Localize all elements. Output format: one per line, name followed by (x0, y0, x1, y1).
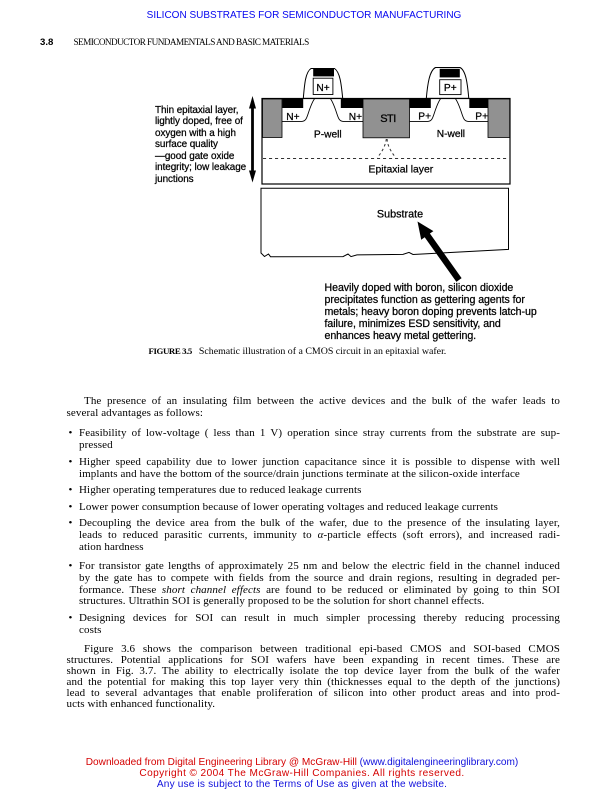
svg-text:P+: P+ (475, 112, 488, 123)
svg-text:Epitaxial layer: Epitaxial layer (369, 165, 434, 176)
svg-text:N+: N+ (349, 112, 362, 123)
svg-text:P+: P+ (418, 112, 431, 123)
svg-text:Substrate: Substrate (377, 209, 423, 221)
svg-text:N+: N+ (286, 112, 299, 123)
svg-text:N-well: N-well (437, 129, 465, 140)
svg-text:STI: STI (380, 113, 396, 125)
svg-text:P-well: P-well (314, 130, 342, 141)
svg-text:P+: P+ (444, 83, 457, 94)
svg-text:N+: N+ (316, 83, 329, 94)
